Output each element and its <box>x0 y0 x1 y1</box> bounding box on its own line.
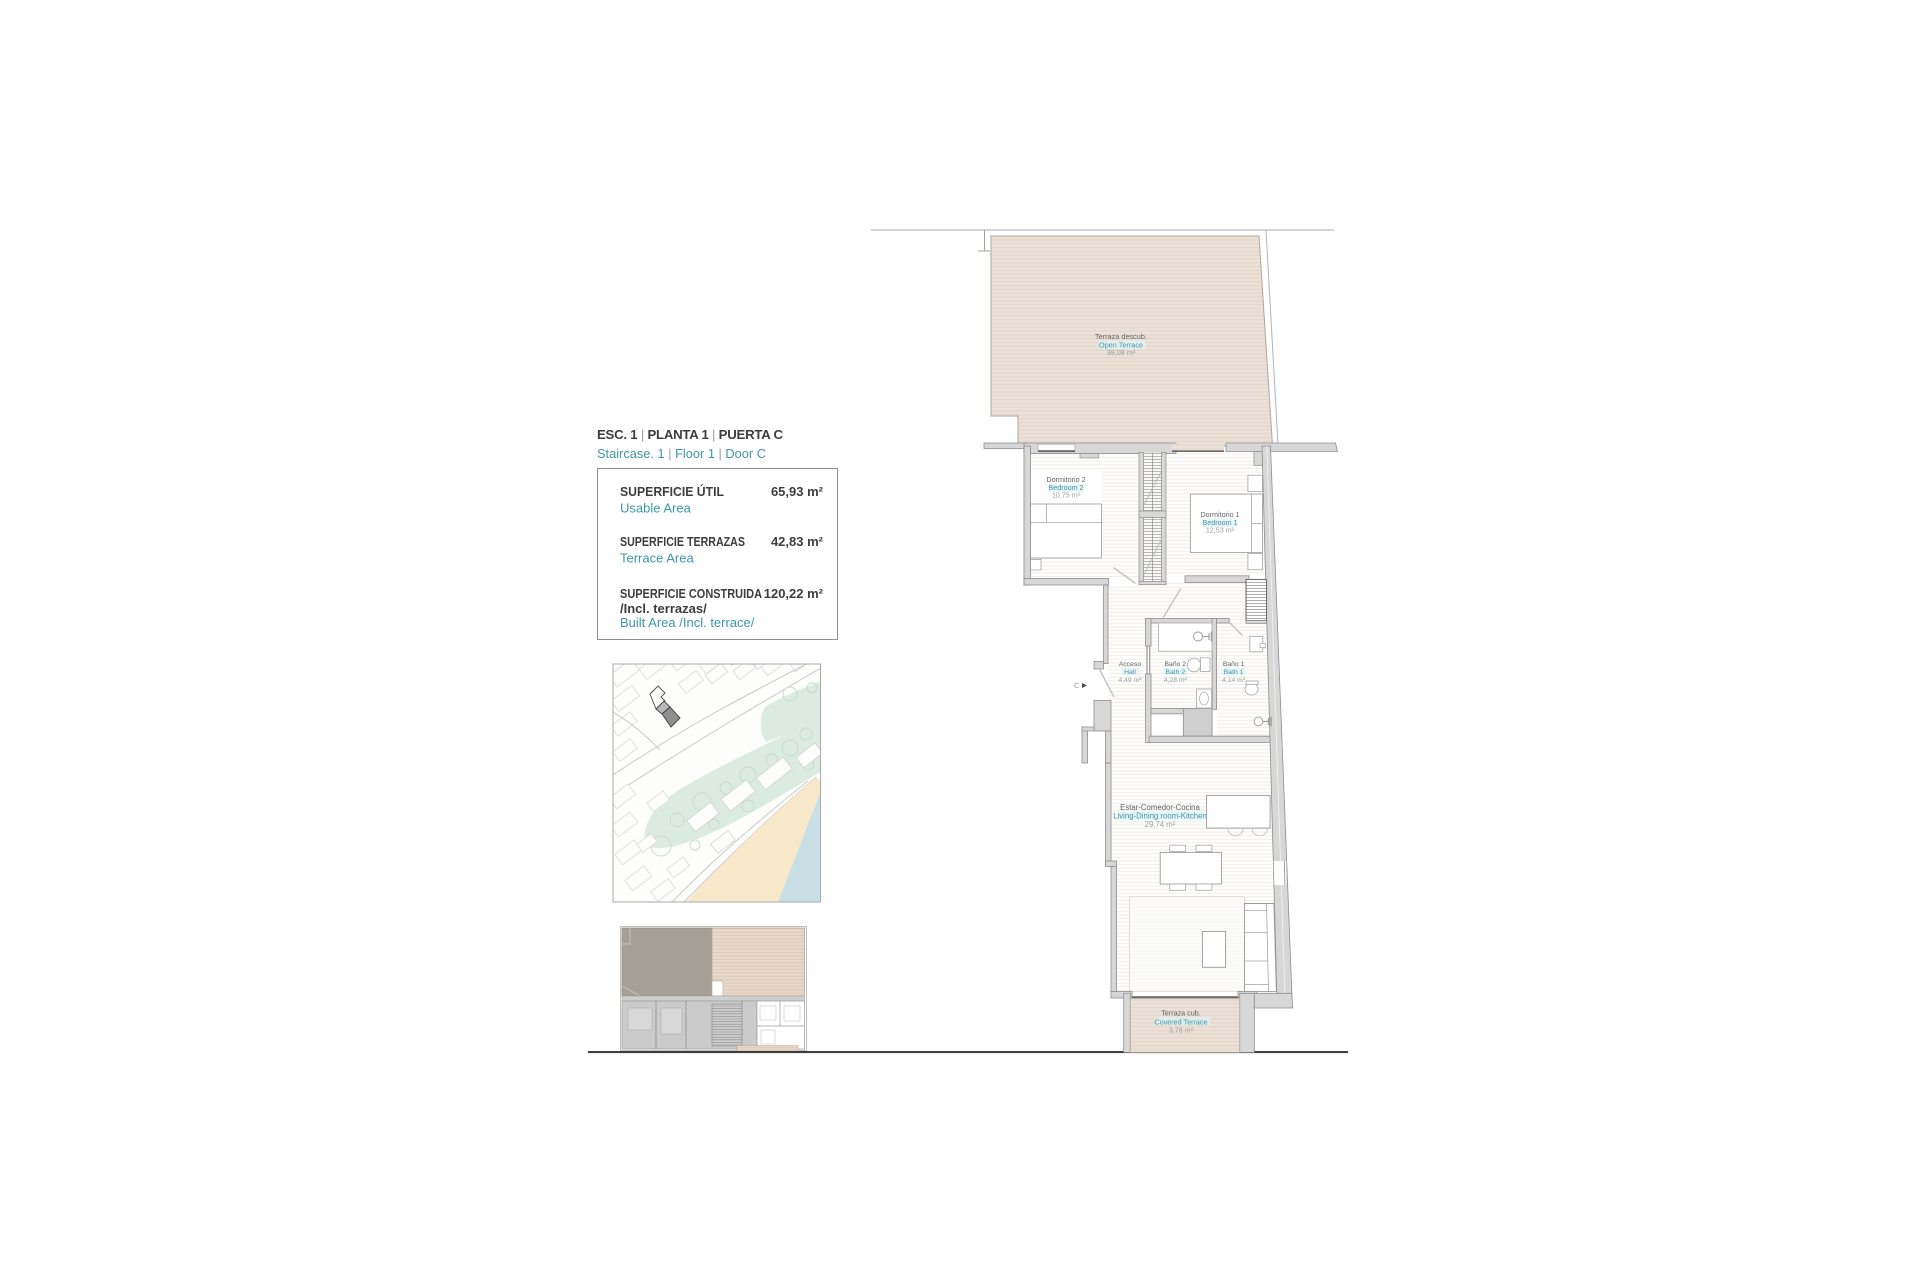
svg-text:Baño 1: Baño 1 <box>1223 661 1245 668</box>
svg-text:29,74 m²: 29,74 m² <box>1145 820 1176 829</box>
svg-text:42,83 m²: 42,83 m² <box>771 534 824 549</box>
svg-text:SUPERFICIE CONSTRUIDA: SUPERFICIE CONSTRUIDA <box>620 586 763 601</box>
svg-text:ESC. 1 | PLANTA 1 | PUERTA: ESC. 1 | PLANTA 1 | PUERTA C <box>597 427 783 442</box>
svg-text:Terraza cub.: Terraza cub. <box>1161 1009 1201 1018</box>
svg-text:3,78 m²: 3,78 m² <box>1169 1025 1194 1034</box>
svg-text:4,28 m²: 4,28 m² <box>1164 677 1188 684</box>
svg-text:4,49 m²: 4,49 m² <box>1118 677 1142 684</box>
svg-text:12,53 m²: 12,53 m² <box>1206 526 1235 535</box>
svg-text:10,75 m²: 10,75 m² <box>1052 491 1081 500</box>
svg-text:Hall: Hall <box>1124 669 1136 676</box>
svg-text:4,14 m²: 4,14 m² <box>1222 677 1246 684</box>
svg-text:120,22 m²: 120,22 m² <box>764 586 824 601</box>
svg-text:39,08 m²: 39,08 m² <box>1107 348 1136 357</box>
svg-text:C: C <box>1074 681 1080 690</box>
svg-text:Built Area /Incl. terrace/: Built Area /Incl. terrace/ <box>620 615 755 630</box>
svg-text:65,93 m²: 65,93 m² <box>771 484 824 499</box>
svg-text:Terrace Area: Terrace Area <box>620 551 694 566</box>
svg-text:Bath 1: Bath 1 <box>1224 669 1244 676</box>
svg-text:Acceso: Acceso <box>1119 661 1142 668</box>
svg-text:Bath 2: Bath 2 <box>1165 669 1185 676</box>
svg-text:/Incl. terrazas/: /Incl. terrazas/ <box>620 601 707 616</box>
svg-text:Baño 2: Baño 2 <box>1165 661 1187 668</box>
svg-text:SUPERFICIE ÚTIL: SUPERFICIE ÚTIL <box>620 484 724 499</box>
svg-text:Usable Area: Usable Area <box>620 501 692 516</box>
svg-text:SUPERFICIE TERRAZAS: SUPERFICIE TERRAZAS <box>620 534 745 549</box>
svg-text:Staircase. 1 | Floor 1 | Doo: Staircase. 1 | Floor 1 | Door C <box>597 446 766 461</box>
